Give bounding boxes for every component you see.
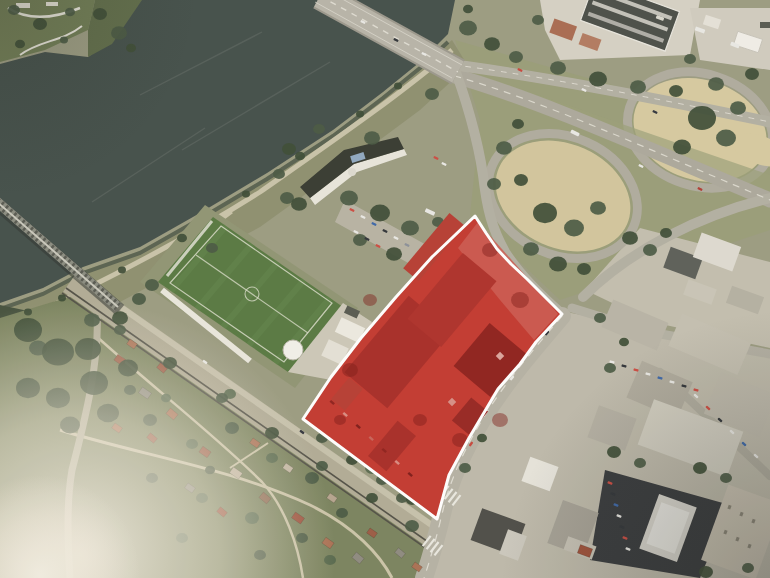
aerial-map-canvas — [0, 0, 770, 578]
warm-cast — [0, 0, 770, 578]
aerial-photo — [0, 0, 770, 578]
